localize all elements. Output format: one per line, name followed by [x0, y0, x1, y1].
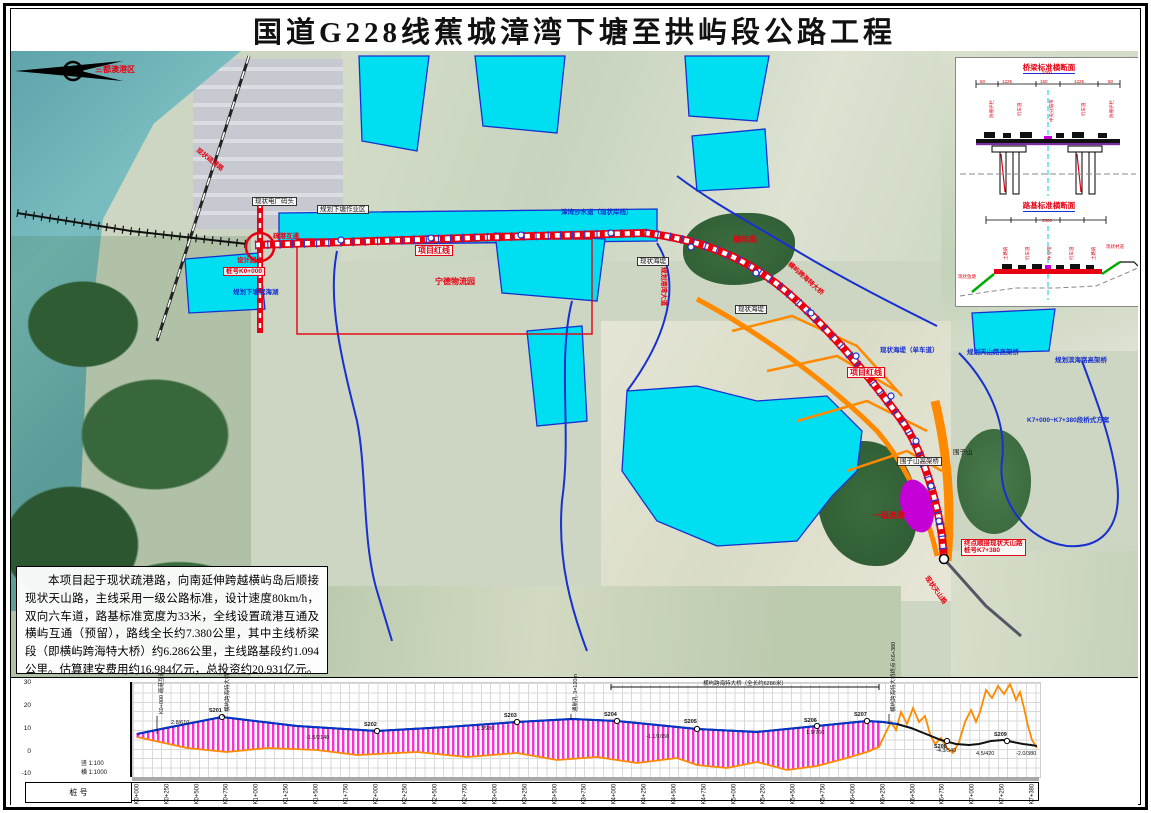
bridge-cross-section-diagram — [956, 70, 1138, 200]
bridge-extent-note: 横屿跨海特大桥（全长约6286米） — [611, 679, 879, 687]
central-lake — [622, 386, 862, 546]
north-arrow-icon — [11, 51, 131, 91]
map-label: 桩号K0+000 — [223, 267, 265, 276]
curve-marker-label: S201 — [209, 708, 222, 714]
map-label: 规划滨海路高架桥 — [1055, 357, 1107, 364]
chainage-label: K6+750 — [940, 798, 946, 805]
title-bar: 国道G228线蕉城漳湾下塘至拱屿段公路工程 — [11, 9, 1138, 52]
project-description-box: 本项目起于现状疏港路，向南延伸跨越横屿岛后顺接现状天山路，主线采用一级公路标准，… — [16, 566, 328, 674]
drawing-sheet: { "title": "国道G228线蕉城漳湾下塘至拱屿段公路工程", "col… — [0, 0, 1151, 813]
chainage-row-header: 桩 号 — [25, 782, 132, 803]
chainage-label: K6+500 — [910, 798, 916, 805]
chainage-label: K4+250 — [642, 798, 648, 805]
chainage-label: K0+250 — [164, 798, 170, 805]
map-label: 终点顺接现状天山路 桩号K7+380 — [961, 539, 1026, 556]
map-label: 现状海堤 — [637, 257, 669, 266]
chainage-label: K4+750 — [701, 798, 707, 805]
chainage-label: K1+500 — [313, 798, 319, 805]
chainage-label: K1+000 — [254, 798, 260, 805]
bridge-band — [137, 717, 879, 770]
tianshan-road — [944, 559, 1021, 636]
inset-label: 中分带 — [1047, 247, 1053, 261]
inset-label: 防撞护栏 — [989, 100, 995, 118]
chainage-label: K2+250 — [403, 798, 409, 805]
chainage-label: K5+250 — [761, 798, 767, 805]
curve-marker-label: S209 — [994, 732, 1007, 738]
chainage-label: K2+000 — [373, 798, 379, 805]
map-label: 规划港湾大道 — [660, 267, 667, 306]
chainage-label: K3+750 — [582, 798, 588, 805]
map-label: 规划下塘滨海湖 — [233, 289, 279, 296]
design-end-marker — [940, 555, 949, 564]
map-label: 宁德物流园 — [435, 277, 475, 286]
chainage-label: K7+250 — [1000, 798, 1006, 805]
chainage-label: K2+500 — [433, 798, 439, 805]
chainage-label: K7+000 — [970, 798, 976, 805]
inset-label: 3300 — [1042, 218, 1052, 223]
chainage-label: K2+750 — [463, 798, 469, 805]
grade-label: -1.5/2140 — [306, 735, 329, 741]
inset-label: 现状村道 — [1106, 244, 1124, 250]
map-label: 疏港互通 — [273, 233, 299, 240]
grade-label: 1.3/980 — [476, 726, 494, 732]
inset-label: 行车道 — [1069, 247, 1075, 261]
inset-label: 1225 — [1002, 79, 1012, 84]
curve-marker-label: S204 — [604, 712, 617, 718]
inset-label: 中央分隔带 — [1049, 100, 1055, 123]
map-label: 现状海堤 — [735, 305, 767, 314]
inset-label: 行车道 — [1081, 103, 1087, 117]
map-label: 规划天山路高架桥 — [967, 349, 1019, 356]
chainage-label: K5+000 — [731, 798, 737, 805]
chainage-label: K6+250 — [880, 798, 886, 805]
page-title: 国道G228线蕉城漳湾下塘至拱屿段公路工程 — [253, 9, 896, 51]
chainage-label: K1+250 — [284, 798, 290, 805]
map-label: 围子山高架桥 — [897, 457, 942, 466]
chainage-label: K0+000 — [135, 798, 141, 805]
curve-marker-label: S207 — [854, 712, 867, 718]
map-label: 围子山 — [953, 449, 973, 456]
inset-label: 行车道 — [1025, 247, 1031, 261]
chainage-label: K3+000 — [492, 798, 498, 805]
map-label: 项目红线 — [415, 245, 453, 256]
inset-label: 土路肩 — [1091, 247, 1097, 261]
map-label: 现状电厂码头 — [252, 197, 297, 206]
chainage-label: K4+500 — [671, 798, 677, 805]
map-label: 一级渔港 — [873, 511, 905, 520]
map-label: 横屿岛 — [733, 235, 757, 244]
inset-label: 1225 — [1074, 79, 1084, 84]
inset-label: 行车道 — [1017, 103, 1023, 117]
inset-label: 50 — [980, 79, 985, 84]
map-label: 项目红线 — [847, 367, 885, 378]
chainage-label: K3+500 — [552, 798, 558, 805]
grade-label: 1.9/760 — [806, 730, 824, 736]
map-label: 规划下塘作业区 — [317, 205, 369, 214]
grade-label: 4.5/420 — [976, 751, 994, 757]
curve-marker-label: S202 — [364, 722, 377, 728]
inset-label: 50 — [1108, 79, 1113, 84]
chainage-label: K7+380 — [1029, 798, 1035, 805]
longitudinal-profile-chart: 3020100-10 竖 1:100 横 1:1000 — [11, 677, 1138, 805]
inset-label: 150 — [1040, 79, 1048, 84]
chainage-label: K3+250 — [522, 798, 528, 805]
profile-flag-label: 横屿跨海特大桥终点 K6+380 — [889, 642, 897, 712]
inset-label: 土路肩 — [1003, 247, 1009, 261]
cross-section-panel: 桥梁标准横断面 — [955, 57, 1138, 307]
profile-base-band — [132, 777, 1039, 781]
map-label: 现状海堤（单车道） — [880, 347, 939, 354]
curve-marker-label: S206 — [804, 718, 817, 724]
chainage-label: K0+500 — [194, 798, 200, 805]
profile-flag-label: 通航孔 3×120m — [571, 674, 579, 712]
chainage-row: K0+000K0+250K0+500K0+750K1+000K1+250K1+5… — [132, 782, 1039, 801]
chainage-label: K0+750 — [224, 798, 230, 805]
project-description-text: 本项目起于现状疏港路，向南延伸跨越横屿岛后顺接现状天山路，主线采用一级公路标准，… — [25, 573, 319, 680]
grade-label: -1.1/1650 — [646, 734, 669, 740]
chainage-label: K4+000 — [612, 798, 618, 805]
grade-label: -4.3/540 — [936, 748, 956, 754]
chainage-label: K1+750 — [343, 798, 349, 805]
chainage-label: K5+750 — [821, 798, 827, 805]
grade-label: 2.8/610 — [171, 720, 189, 726]
existing-shugang-road — [17, 213, 247, 244]
map-label: 漳湾沙水道（现状岸线） — [561, 209, 633, 216]
inset-label: 防撞护栏 — [1109, 100, 1115, 118]
curve-marker-label: S203 — [504, 713, 517, 719]
map-label: 设计起点 — [237, 257, 263, 264]
subgrade-section-labels: 3300土路肩行车道中分带行车道土路肩现状鱼塘现状村道 — [956, 208, 1138, 304]
chainage-label: K6+000 — [850, 798, 856, 805]
curve-marker-label: S205 — [684, 719, 697, 725]
map-label: K7+000~K7+380段桥式方案 — [1027, 417, 1109, 424]
inset-label: 现状鱼塘 — [958, 274, 976, 280]
chainage-label: K5+500 — [791, 798, 797, 805]
grade-label: -2.0/380 — [1016, 751, 1036, 757]
inset-label: 3300 — [1042, 70, 1052, 75]
